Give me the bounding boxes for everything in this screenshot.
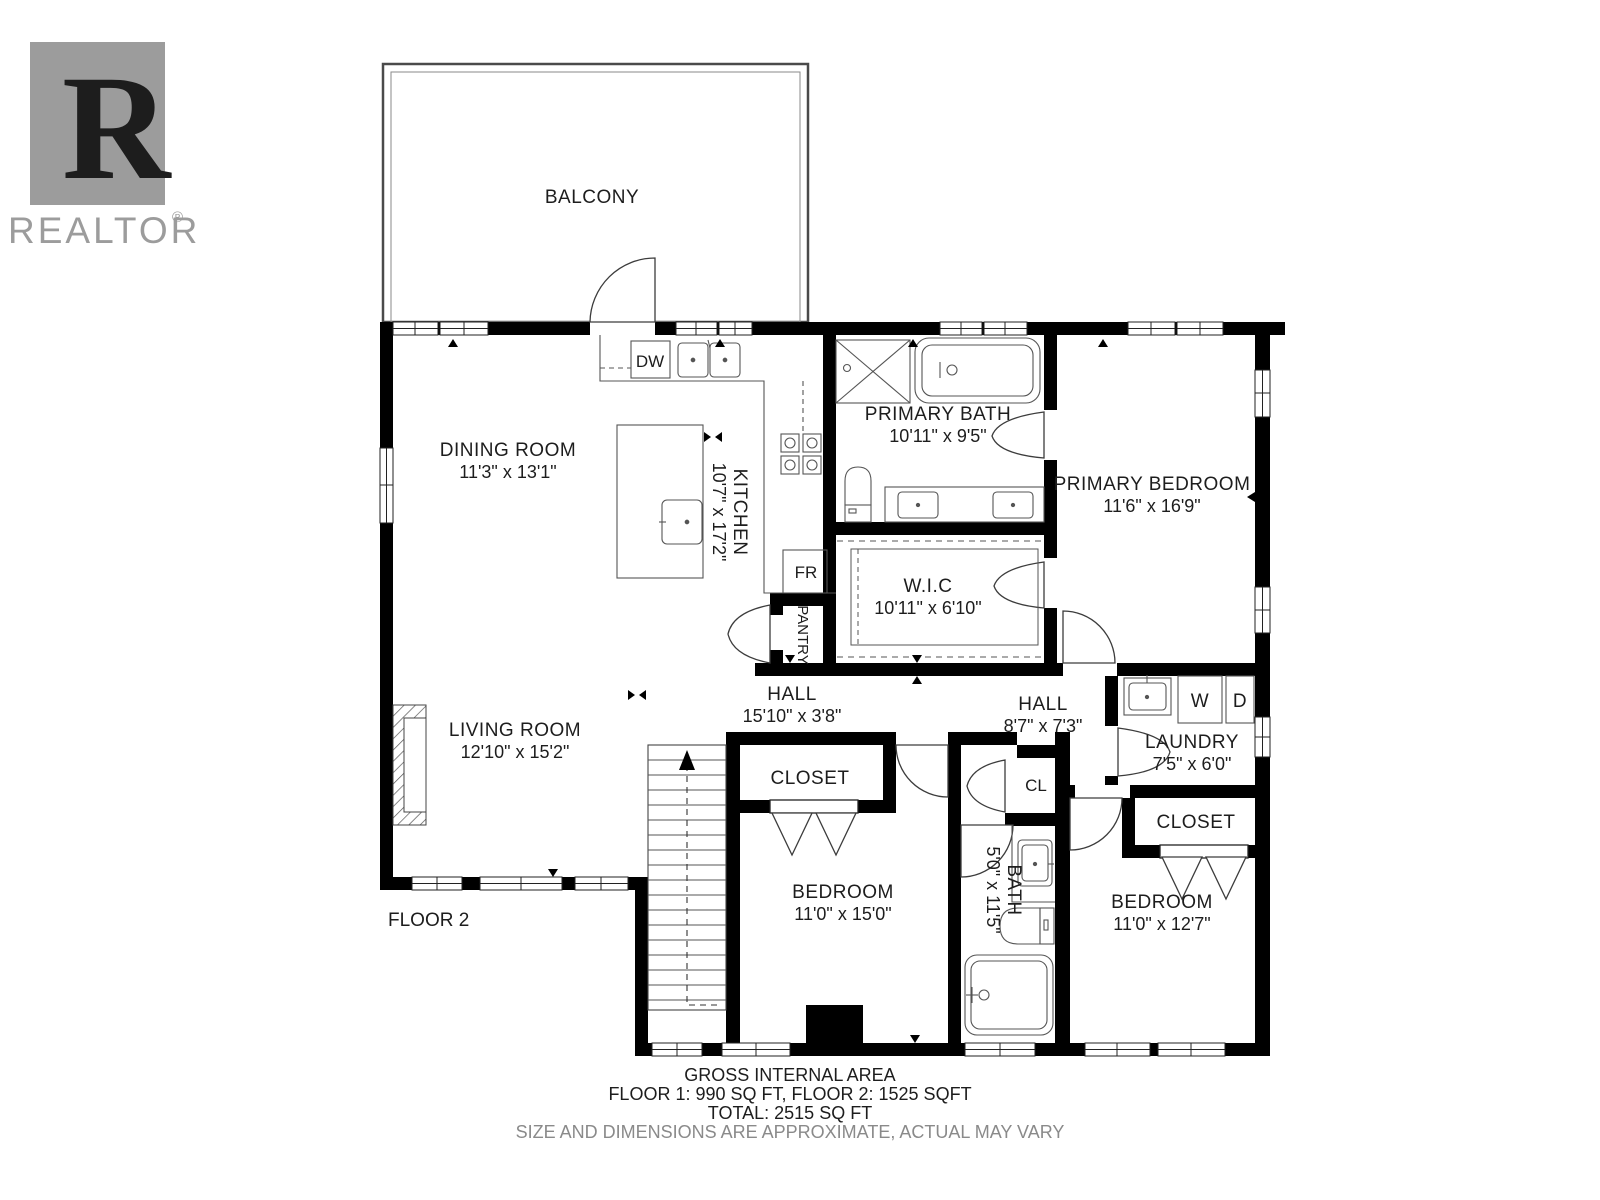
footer: GROSS INTERNAL AREA FLOOR 1: 990 SQ FT, … [516,1065,1065,1142]
walls [380,322,1285,1056]
bathtub-icon [915,338,1040,403]
bathtub-icon [965,955,1053,1035]
bedroom2-dims: 11'0" x 12'7" [1113,914,1210,934]
window [1255,587,1270,633]
footer-gross-area: GROSS INTERNAL AREA [684,1065,895,1085]
window [575,877,628,890]
dining-room-dims: 11'3" x 13'1" [459,462,556,482]
primary-bath-dims: 10'11" x 9'5" [889,426,986,446]
window [965,1043,1035,1056]
footer-disclaimer: SIZE AND DIMENSIONS ARE APPROXIMATE, ACT… [516,1122,1065,1142]
floor-plan-page: R REALTOR ® BALCONY [0,0,1600,1200]
window [1177,322,1223,335]
laundry-label: LAUNDRY [1145,732,1239,753]
hall-main-label: HALL [767,684,817,705]
wic-dims: 10'11" x 6'10" [874,598,981,618]
window [1255,717,1270,757]
bedroom1-dims: 11'0" x 15'0" [794,904,891,924]
window [412,877,462,890]
balcony: BALCONY [383,64,808,322]
floor-label: FLOOR 2 [388,910,469,931]
bedroom2-label: BEDROOM [1111,892,1213,913]
window [440,322,488,335]
living-room-label: LIVING ROOM [449,720,581,741]
shower-icon [836,340,910,403]
primary-bedroom-dims: 11'6" x 16'9" [1103,496,1200,516]
washer-label: W [1191,691,1209,712]
hall-closet-label: CL [1025,776,1047,795]
balcony-label: BALCONY [545,187,639,208]
pantry-label: PANTRY [794,605,811,664]
living-room-dims: 12'10" x 15'2" [461,742,570,762]
laundry-dims: 7'5" x 6'0" [1153,754,1232,774]
balcony-door-swing [590,258,655,322]
kitchen-sink-icon [678,340,740,377]
staircase [648,745,726,1010]
kitchen-label-group: KITCHEN 10'7" x 17'2" [709,463,750,562]
vanity-double-sink [885,487,1044,522]
primary-bedroom-label: PRIMARY BEDROOM [1054,474,1251,495]
fridge-label: FR [795,563,818,582]
window [1255,370,1270,417]
kitchen-dims: 10'7" x 17'2" [709,463,729,562]
doors [590,258,1170,877]
registered-trademark-icon: ® [172,209,183,226]
pantry-label-group: PANTRY [794,605,811,664]
bifold-door-icon [816,813,856,855]
toilet-icon [845,467,871,522]
chase-block [806,1005,863,1043]
closet-bedroom1-label: CLOSET [770,768,849,789]
window [1085,1043,1150,1056]
closet-bedroom2-label: CLOSET [1156,812,1235,833]
dryer-label: D [1233,691,1247,712]
window [719,322,752,335]
kitchen-island [617,425,703,578]
realtor-logo-letter: R [62,45,172,211]
window [722,1043,790,1056]
wic-door-swing [994,562,1044,608]
footer-total-area: TOTAL: 2515 SQ FT [708,1103,872,1123]
window [1158,1043,1225,1056]
hall-upper-dims: 8'7" x 7'3" [1004,716,1083,736]
window [652,1043,702,1056]
dining-room-label: DINING ROOM [440,440,576,461]
bath2-label: BATH [1003,864,1024,915]
fireplace-icon [393,705,426,825]
floor-plan-canvas: R REALTOR ® BALCONY [0,0,1600,1200]
bath2-dims: 5'0" x 11'5" [983,846,1003,933]
window [1128,322,1175,335]
window [393,322,438,335]
realtor-logo: R REALTOR ® [8,42,200,251]
stove-icon [781,434,821,474]
window [480,877,562,890]
dishwasher-label: DW [636,352,664,371]
window [380,448,393,523]
footer-floor-areas: FLOOR 1: 990 SQ FT, FLOOR 2: 1525 SQFT [608,1084,971,1104]
window [676,322,717,335]
window [984,322,1027,335]
primary-bedroom-door-swing [1063,611,1115,663]
laundry-sink-icon [1124,675,1171,715]
primary-bath-label: PRIMARY BATH [865,404,1011,425]
hall-closet-door-swing [967,760,1005,812]
bifold-door-icon [772,813,812,855]
bedroom1-door-swing [896,745,948,797]
pantry-door-swing [728,605,770,663]
hall-main-dims: 15'10" x 3'8" [743,706,842,726]
bedroom1-label: BEDROOM [792,882,894,903]
wic-label: W.I.C [904,576,953,597]
window [940,322,982,335]
kitchen-label: KITCHEN [729,469,750,556]
bedroom2-door-swing [1070,798,1122,850]
hall-upper-label: HALL [1018,694,1068,715]
